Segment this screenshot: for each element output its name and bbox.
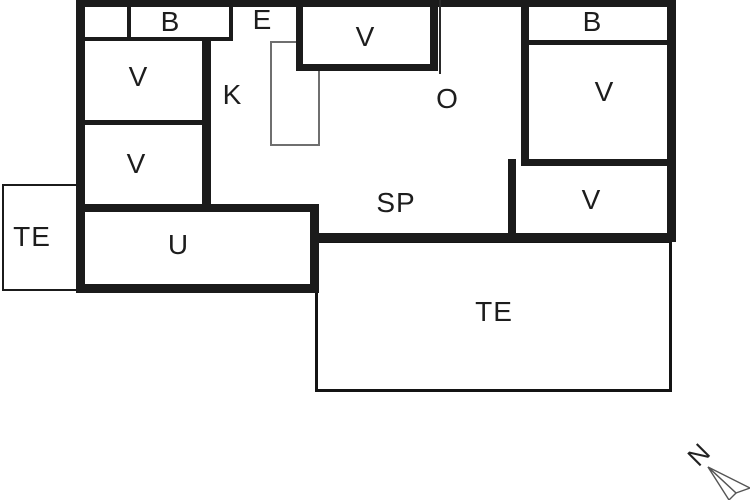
room-label-sp: SP [376, 189, 415, 217]
room-label-terrace-main: TE [475, 298, 513, 326]
wall-right-wing-divider [521, 0, 529, 166]
wall-left [76, 0, 85, 293]
room-label-v-left-upper: V [129, 63, 148, 91]
partition-smallbox-bottom [85, 37, 127, 41]
wall-vright-lower-left [508, 159, 516, 242]
stair-rect-bottom-edge [270, 144, 320, 146]
wall-vmid-right [430, 0, 438, 71]
wall-utility-top [76, 204, 319, 212]
room-label-entrance: E [253, 6, 272, 34]
wall-right [667, 0, 676, 242]
floor-plan: B E V B V V V V K O SP U TE TE N [0, 0, 750, 500]
room-label-v-right-upper: V [595, 78, 614, 106]
wall-bottom-right [310, 233, 676, 242]
wall-vmid-offset-line [439, 0, 441, 74]
partition-b1-right [229, 0, 233, 41]
wall-vright-upper-bottom [521, 159, 667, 166]
room-label-living-room: O [436, 85, 458, 113]
room-label-v-left-lower: V [127, 150, 146, 178]
stair-rect-left-edge [270, 41, 272, 146]
partition-b2-bottom [529, 40, 667, 45]
partition-smallbox-right [127, 0, 131, 41]
partition-b1-bottom [131, 37, 233, 41]
wall-utility-right [310, 204, 319, 293]
room-label-v-right-lower: V [582, 186, 601, 214]
room-label-terrace-left: TE [13, 223, 51, 251]
room-label-b-top-left: B [161, 8, 180, 36]
room-label-kitchen: K [223, 81, 242, 109]
wall-v-divider-left [85, 120, 202, 125]
room-label-utility: U [168, 231, 188, 259]
stair-rect-right-edge [318, 64, 320, 146]
room-label-v-top-middle: V [356, 23, 375, 51]
north-label: N [681, 437, 716, 472]
room-label-b-top-right: B [583, 8, 602, 36]
wall-bottom-left [76, 284, 319, 293]
wall-left-closets-right [202, 37, 211, 212]
wall-vmid-bottom [296, 64, 438, 71]
wall-vmid-left [296, 0, 303, 71]
